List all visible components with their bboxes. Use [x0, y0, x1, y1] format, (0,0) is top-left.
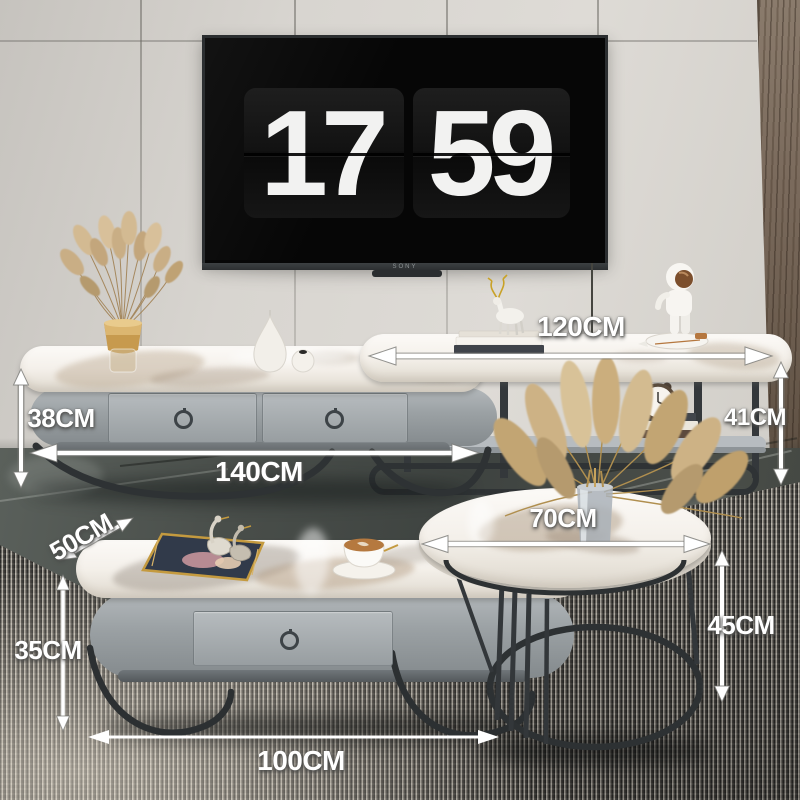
flip-card-minutes: 59 — [413, 88, 570, 218]
dim-label-console-width: 120CM — [537, 313, 625, 341]
tv-stand-base — [54, 442, 450, 456]
dim-label-round-diameter: 70CM — [529, 505, 596, 531]
dim-label-console-height: 41CM — [724, 406, 786, 430]
clock-hours: 17 — [260, 92, 382, 214]
dim-label-coffee-height: 35CM — [14, 637, 81, 663]
product-photo-living-room: 17 59 SONY — [0, 0, 800, 800]
marble-vein — [615, 352, 667, 362]
dim-label-stand-width: 140CM — [215, 458, 303, 486]
tv-mount — [372, 270, 442, 277]
tv-bezel: SONY — [202, 263, 608, 270]
drawer-handle — [325, 410, 344, 429]
dim-label-round-height: 45CM — [707, 612, 774, 638]
coffee-table-base — [118, 670, 528, 682]
dim-label-stand-height: 38CM — [27, 405, 94, 431]
dim-label-coffee-width: 100CM — [257, 747, 345, 775]
marble-gloss — [468, 500, 494, 546]
drawer-handle — [174, 410, 193, 429]
clock-minutes: 59 — [428, 92, 550, 214]
round-table-shadow — [478, 736, 713, 766]
sony-logo: SONY — [392, 264, 417, 270]
marble-gloss — [228, 350, 348, 364]
drawer-handle — [280, 631, 299, 650]
coffee-table-shadow — [100, 714, 520, 742]
flip-card-hours: 17 — [244, 88, 404, 218]
wall-seam — [140, 0, 142, 362]
